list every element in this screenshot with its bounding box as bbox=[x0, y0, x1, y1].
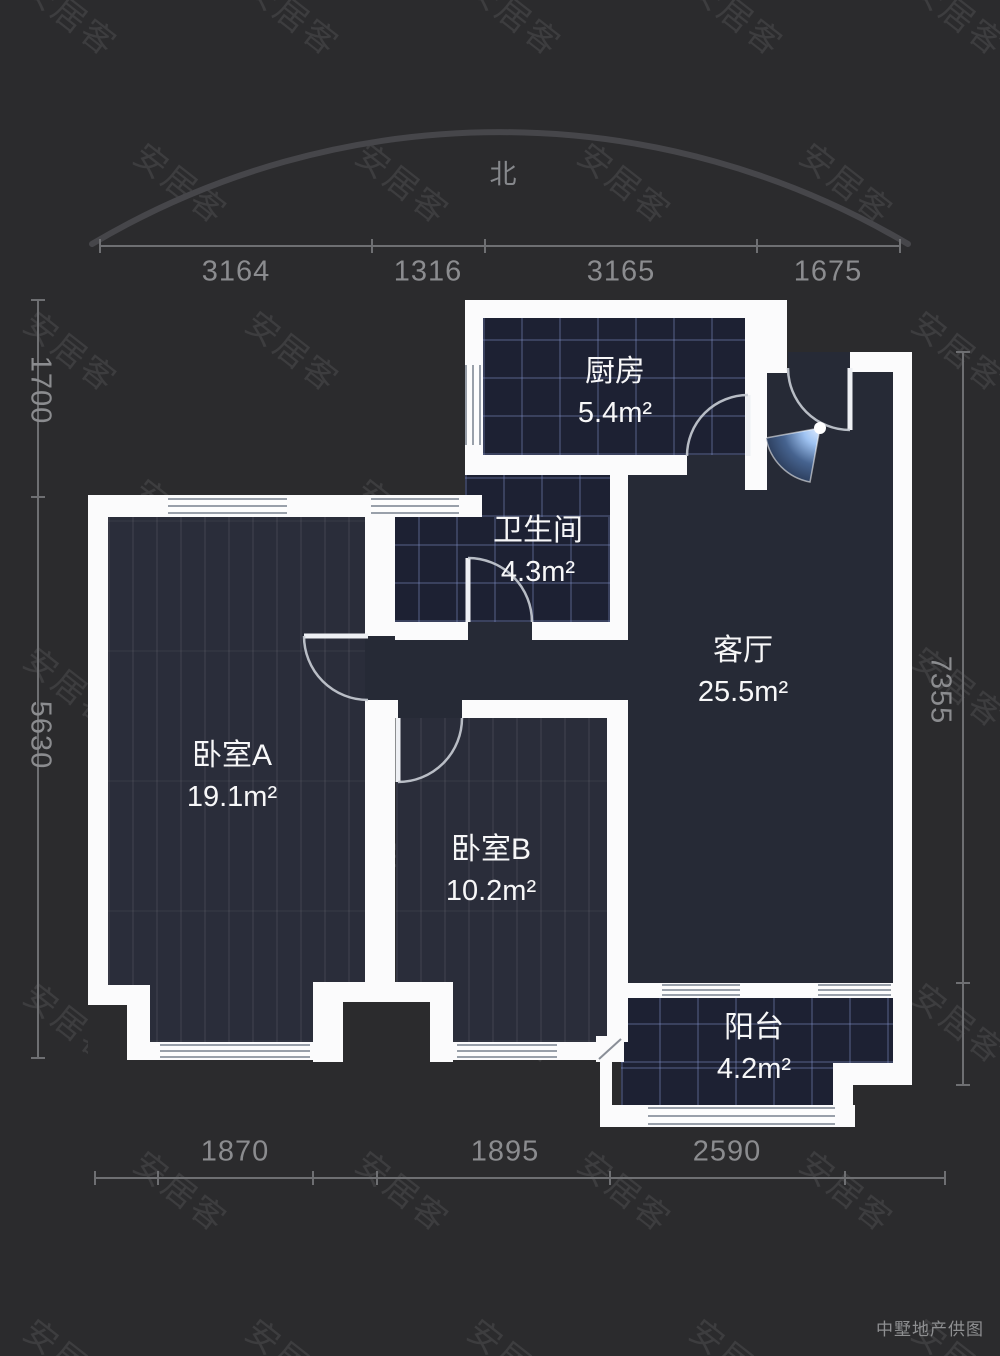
wall-segment bbox=[745, 300, 767, 490]
watermark-text: 安居客 bbox=[15, 0, 130, 66]
wall-segment bbox=[767, 318, 787, 373]
watermark-text: 安居客 bbox=[903, 970, 1000, 1074]
dim-bottom-1: 1870 bbox=[201, 1136, 270, 1169]
bathroom-area: 4.3m² bbox=[493, 554, 583, 590]
bedroomA-area: 19.1m² bbox=[187, 779, 277, 815]
window bbox=[465, 365, 481, 445]
watermark-text: 安居客 bbox=[681, 0, 796, 66]
window bbox=[371, 498, 459, 514]
dim-top-2: 1316 bbox=[394, 256, 463, 289]
wall-segment bbox=[465, 300, 787, 318]
watermark-text: 安居客 bbox=[347, 130, 462, 234]
wall-segment bbox=[313, 982, 343, 1062]
balcony-rail bbox=[648, 1107, 835, 1125]
room-label-balcony: 阳台 4.2m² bbox=[717, 1009, 791, 1087]
bedroomA-name: 卧室A bbox=[187, 737, 277, 775]
pillar bbox=[596, 1036, 624, 1062]
void-notch bbox=[343, 1002, 430, 1062]
watermark-text: 安居客 bbox=[903, 298, 1000, 402]
wall-segment bbox=[365, 495, 395, 1060]
wall-segment bbox=[600, 1056, 612, 1107]
credit-text: 中墅地产供图 bbox=[876, 1315, 984, 1340]
bathroom-name: 卫生间 bbox=[493, 512, 583, 550]
window bbox=[168, 498, 287, 514]
wall-segment bbox=[88, 495, 108, 1007]
north-label: 北 bbox=[490, 153, 517, 192]
dim-bottom-2: 1895 bbox=[471, 1136, 540, 1169]
wall-segment bbox=[465, 455, 687, 475]
watermark-text: 安居客 bbox=[237, 1306, 352, 1356]
watermark-text: 安居客 bbox=[791, 130, 906, 234]
room-label-kitchen: 厨房 5.4m² bbox=[578, 353, 652, 431]
window bbox=[662, 984, 740, 996]
dim-left-1: 1700 bbox=[24, 356, 57, 425]
living-floor bbox=[628, 473, 893, 983]
dim-top-1: 3164 bbox=[202, 256, 271, 289]
hallway-floor bbox=[395, 640, 628, 702]
bathroom-door-opening bbox=[468, 622, 532, 640]
kitchen-door-opening bbox=[687, 455, 745, 475]
watermark-text: 安居客 bbox=[681, 1306, 796, 1356]
kitchen-area: 5.4m² bbox=[578, 395, 652, 431]
watermark-text: 安居客 bbox=[791, 1138, 906, 1242]
void-notch bbox=[88, 1005, 127, 1077]
watermark-text: 安居客 bbox=[903, 0, 1000, 66]
watermark-text: 安居客 bbox=[237, 0, 352, 66]
watermark-text: 安居客 bbox=[15, 1306, 130, 1356]
window bbox=[160, 1044, 310, 1058]
room-label-living: 客厅 25.5m² bbox=[698, 632, 788, 710]
bedroomB-door-opening bbox=[398, 700, 462, 718]
living-name: 客厅 bbox=[698, 632, 788, 670]
bathroom-floor-upper bbox=[465, 475, 610, 517]
dim-top-3: 3165 bbox=[587, 256, 656, 289]
watermark-text: 安居客 bbox=[125, 130, 240, 234]
balcony-name: 阳台 bbox=[717, 1009, 791, 1047]
bedroomB-name: 卧室B bbox=[446, 831, 536, 869]
kitchen-name: 厨房 bbox=[578, 353, 652, 391]
window bbox=[457, 1044, 557, 1058]
watermark-text: 安居客 bbox=[347, 1138, 462, 1242]
living-area: 25.5m² bbox=[698, 674, 788, 710]
room-label-bathroom: 卫生间 4.3m² bbox=[493, 512, 583, 590]
dim-bottom-3: 2590 bbox=[693, 1136, 762, 1169]
dim-top-4: 1675 bbox=[794, 256, 863, 289]
watermark-text: 安居客 bbox=[569, 130, 684, 234]
dim-right-1: 7355 bbox=[924, 656, 957, 725]
wall-segment bbox=[127, 985, 150, 1060]
watermark-text: 安居客 bbox=[459, 1306, 574, 1356]
balcony-area: 4.2m² bbox=[717, 1051, 791, 1087]
watermark-text: 安居客 bbox=[237, 298, 352, 402]
floorplan-canvas: 安居客安居客安居客安居客安居客安居客安居客安居客安居客安居客安居客安居客安居客安… bbox=[0, 0, 1000, 1356]
watermark-text: 安居客 bbox=[459, 0, 574, 66]
dim-left-2: 5630 bbox=[24, 701, 57, 770]
entry-floor bbox=[767, 372, 893, 473]
wall-segment bbox=[610, 473, 628, 640]
window bbox=[818, 984, 891, 996]
wall-segment bbox=[893, 352, 912, 1085]
room-label-bedroomA: 卧室A 19.1m² bbox=[187, 737, 277, 815]
entry-door-opening bbox=[788, 352, 850, 372]
bedroomA-door-opening bbox=[365, 636, 395, 700]
room-label-bedroomB: 卧室B 10.2m² bbox=[446, 831, 536, 909]
watermark-text: 安居客 bbox=[569, 1138, 684, 1242]
bedroomB-area: 10.2m² bbox=[446, 873, 536, 909]
